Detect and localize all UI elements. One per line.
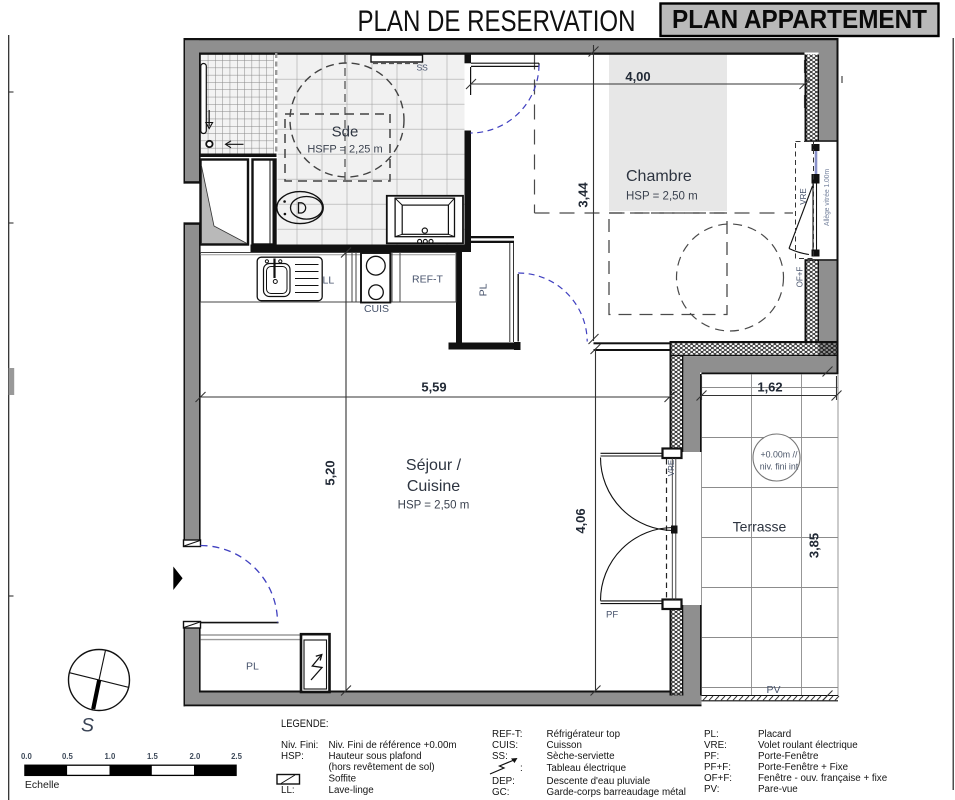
svg-text:DEP:: DEP:: [492, 776, 515, 787]
svg-text:4,06: 4,06: [573, 508, 588, 533]
svg-text:Sde: Sde: [332, 124, 359, 141]
svg-text:Volet roulant électrique: Volet roulant électrique: [758, 740, 858, 751]
svg-text:Séjour /: Séjour /: [406, 457, 462, 474]
svg-text:Terrasse: Terrasse: [733, 519, 787, 535]
svg-text:OF+F:: OF+F:: [704, 773, 732, 784]
svg-text:Allège vitrée 1.00m: Allège vitrée 1.00m: [822, 169, 831, 226]
svg-text:VRE:: VRE:: [704, 740, 727, 751]
svg-text:2.0: 2.0: [189, 752, 201, 761]
svg-text:HSFP = 2,25 m: HSFP = 2,25 m: [307, 144, 382, 156]
svg-text:5,59: 5,59: [421, 380, 446, 395]
svg-text:Hauteur sous plafond: Hauteur sous plafond: [329, 751, 422, 762]
svg-text:1.0: 1.0: [104, 752, 116, 761]
svg-text:LL:: LL:: [281, 785, 295, 796]
svg-text:PLAN APPARTEMENT: PLAN APPARTEMENT: [672, 4, 927, 34]
svg-text:SS: SS: [417, 63, 429, 73]
svg-text:PL: PL: [246, 661, 259, 673]
svg-text:PF+F:: PF+F:: [704, 762, 731, 773]
svg-text:LEGENDE:: LEGENDE:: [281, 718, 329, 730]
svg-text:Porte-Fenêtre + Fixe: Porte-Fenêtre + Fixe: [758, 762, 849, 773]
svg-text:+0.00m //: +0.00m //: [761, 450, 798, 460]
svg-text:VRE: VRE: [667, 460, 676, 476]
svg-text:HSP = 2,50 m: HSP = 2,50 m: [626, 191, 698, 203]
svg-text:Garde-corps barreaudage métal: Garde-corps barreaudage métal: [547, 787, 686, 798]
svg-text:Soffite: Soffite: [329, 774, 357, 785]
svg-text:PLAN DE RESERVATION: PLAN DE RESERVATION: [358, 5, 636, 38]
svg-text:PL:: PL:: [704, 729, 719, 740]
svg-text:0.5: 0.5: [62, 752, 74, 761]
svg-text:REF-T:: REF-T:: [492, 729, 522, 740]
svg-text:Echelle: Echelle: [25, 779, 60, 791]
svg-text:Niv. Fini:: Niv. Fini:: [281, 740, 318, 751]
svg-text:PV: PV: [767, 684, 781, 696]
svg-text:Fenêtre - ouv. française + fix: Fenêtre - ouv. française + fixe: [758, 773, 888, 784]
svg-text:CUIS: CUIS: [364, 303, 389, 315]
svg-text:Sèche-serviette: Sèche-serviette: [547, 751, 616, 762]
svg-text:niv. fini int: niv. fini int: [760, 462, 799, 472]
svg-text:HSP = 2,50 m: HSP = 2,50 m: [398, 500, 470, 512]
svg-text:Cuisson: Cuisson: [547, 740, 582, 751]
svg-text:Descente d'eau pluviale: Descente d'eau pluviale: [547, 776, 651, 787]
svg-text:Porte-Fenêtre: Porte-Fenêtre: [758, 751, 819, 762]
svg-text:VRE: VRE: [799, 188, 808, 204]
svg-text:5,20: 5,20: [323, 460, 338, 485]
svg-text:LL: LL: [323, 275, 335, 287]
svg-text:Réfrigérateur top: Réfrigérateur top: [547, 729, 621, 740]
svg-text:PL: PL: [478, 283, 490, 296]
svg-text:Niv. Fini de référence +0.00m: Niv. Fini de référence +0.00m: [329, 740, 457, 751]
svg-text:Placard: Placard: [758, 729, 791, 740]
svg-text:REF-T: REF-T: [412, 274, 443, 286]
svg-text:CUIS:: CUIS:: [492, 740, 518, 751]
svg-text:1,62: 1,62: [757, 380, 782, 395]
svg-text:PF: PF: [606, 610, 618, 621]
svg-text:S: S: [81, 715, 94, 737]
svg-text:SS:: SS:: [492, 751, 508, 762]
svg-text:3,44: 3,44: [576, 182, 591, 208]
svg-text:4,00: 4,00: [625, 69, 650, 84]
svg-text:OF+F: OF+F: [796, 267, 805, 288]
svg-text::: :: [520, 763, 523, 774]
svg-text:HSP:: HSP:: [281, 751, 304, 762]
svg-text:Chambre: Chambre: [626, 168, 692, 185]
svg-text:2.5: 2.5: [231, 752, 243, 761]
svg-text:Pare-vue: Pare-vue: [758, 784, 798, 795]
svg-text:1.5: 1.5: [147, 752, 159, 761]
svg-text:PF:: PF:: [704, 751, 719, 762]
svg-text:GC:: GC:: [492, 787, 509, 798]
svg-text:Cuisine: Cuisine: [407, 478, 460, 495]
svg-text:3,85: 3,85: [807, 533, 822, 558]
svg-text:0.0: 0.0: [21, 752, 33, 761]
svg-text:Tableau électrique: Tableau électrique: [547, 763, 627, 774]
svg-text:PV:: PV:: [704, 784, 719, 795]
svg-text:Lave-linge: Lave-linge: [329, 785, 375, 796]
svg-text:(hors revêtement de sol): (hors revêtement de sol): [329, 762, 435, 773]
